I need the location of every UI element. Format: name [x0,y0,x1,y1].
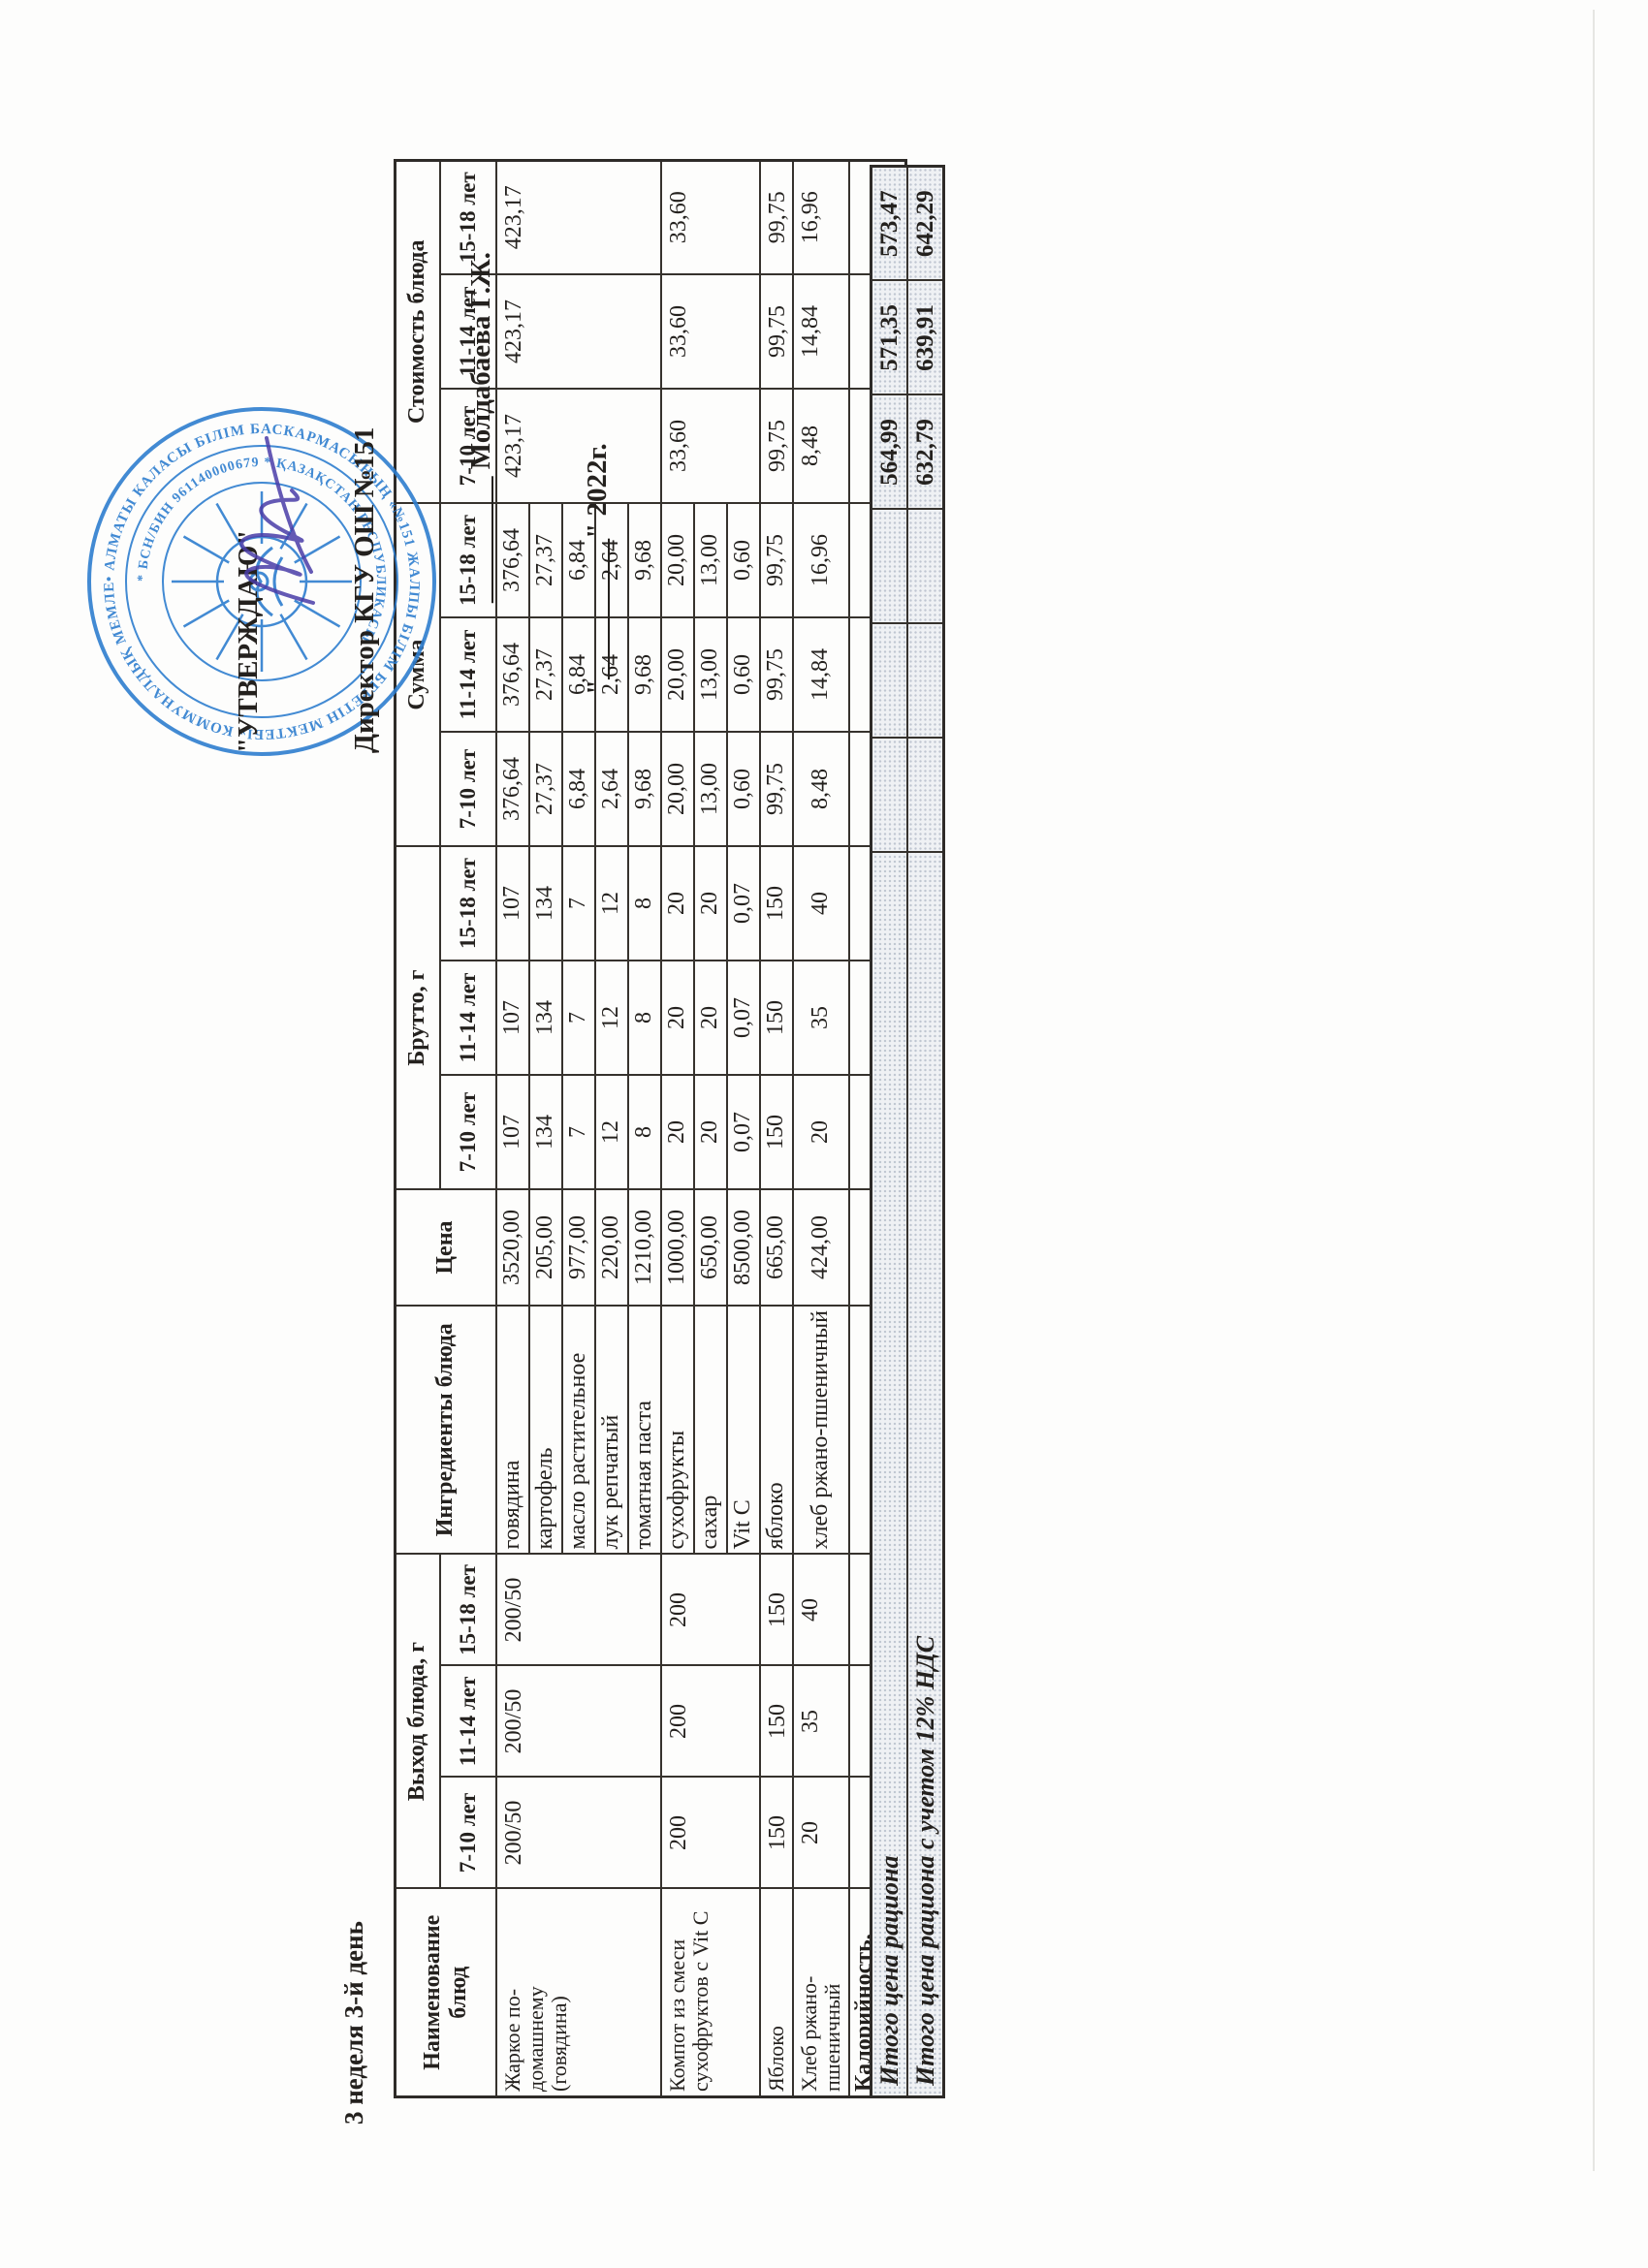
dish-cost-cell: 99,75 [760,274,793,389]
ingredient-cell: томатная паста [628,1306,661,1554]
yield-cell: 150 [760,1666,793,1778]
price-cell: 977,00 [562,1189,595,1306]
ingredient-cell: Vit C [727,1306,760,1554]
approval-line-director: Директор КГУ ОШ №151 [345,252,384,753]
yield-cell: 150 [760,1555,793,1666]
total-value-cell: 564,99 [872,395,908,510]
yield-cell: 35 [793,1666,849,1778]
dish-cost-cell: 16,96 [793,160,849,274]
yield-cell: 200/50 [496,1555,661,1666]
yield-cell: 200 [661,1666,760,1778]
yield-cell: 200 [661,1778,760,1889]
brutto-cell: 7 [562,1075,595,1189]
brutto-cell: 7 [562,961,595,1075]
column-header: 15-18 лет [440,846,496,961]
column-header: 11-14 лет [440,961,496,1075]
empty-cell [872,510,908,624]
brutto-cell: 150 [760,961,793,1075]
brutto-cell: 8 [628,1075,661,1189]
column-header: 15-18 лет [440,1555,496,1666]
yield-cell: 20 [793,1778,849,1889]
column-header: Цена [396,1189,496,1306]
brutto-cell: 150 [760,1075,793,1189]
brutto-cell: 134 [529,846,562,961]
sum-cell: 0,60 [727,503,760,617]
empty-cell [872,739,908,853]
sum-cell: 16,96 [793,503,849,617]
price-cell: 1000,00 [661,1189,694,1306]
dish-name-cell: Компот из смеси сухофруктов с Vit C [661,1889,760,2097]
price-cell: 665,00 [760,1189,793,1306]
column-header: Брутто, г [396,846,440,1189]
dish-cost-cell: 14,84 [793,274,849,389]
sum-cell: 13,00 [694,503,727,617]
approval-line-signatory: _________ Молдабаева Г.Ж. [461,252,500,753]
ingredient-cell: масло растительное [562,1306,595,1554]
empty-cell [907,510,944,624]
yield-cell: 200/50 [496,1778,661,1889]
empty-cell [907,624,944,739]
sum-cell: 99,75 [760,732,793,846]
yield-cell: 40 [793,1555,849,1666]
total-row-label: Итого цена рациона с учетом 12% НДС [907,853,944,2097]
yield-cell: 200 [661,1555,760,1666]
total-value-cell: 639,91 [907,281,944,395]
brutto-cell: 134 [529,961,562,1075]
total-value-cell: 571,35 [872,281,908,395]
price-cell: 220,00 [595,1189,628,1306]
signature-ink [199,397,344,630]
brutto-cell: 12 [595,1075,628,1189]
ingredient-cell: лук репчатый [595,1306,628,1554]
brutto-cell: 107 [496,1075,529,1189]
sum-cell: 8,48 [793,732,849,846]
sum-cell: 99,75 [760,617,793,732]
brutto-cell: 7 [562,846,595,961]
brutto-cell: 20 [694,846,727,961]
ingredient-cell: хлеб ржано-пшеничный [793,1306,849,1554]
total-value-cell: 642,29 [907,167,944,281]
brutto-cell: 40 [793,846,849,961]
dish-cost-cell: 99,75 [760,389,793,503]
dish-name-cell: Яблоко [760,1889,793,2097]
column-header: Наименование блюд [396,1889,496,2097]
ingredient-cell: картофель [529,1306,562,1554]
column-header: 7-10 лет [440,1778,496,1889]
empty-cell [872,624,908,739]
price-cell: 424,00 [793,1189,849,1306]
ingredient-cell: сахар [694,1306,727,1554]
sum-cell: 0,60 [727,732,760,846]
brutto-cell: 150 [760,846,793,961]
brutto-cell: 20 [661,961,694,1075]
dish-name-cell: Жаркое по-домашнему (говядина) [496,1889,661,2097]
brutto-cell: 0,07 [727,846,760,961]
page-title: 3 неделя 3-й день [339,1921,369,2125]
price-cell: 650,00 [694,1189,727,1306]
brutto-cell: 20 [793,1075,849,1189]
brutto-cell: 0,07 [727,961,760,1075]
brutto-cell: 0,07 [727,1075,760,1189]
total-row-label: Итого цена рациона [872,853,908,2097]
empty-cell [907,739,944,853]
total-value-cell: 573,47 [872,167,908,281]
brutto-cell: 12 [595,961,628,1075]
brutto-cell: 134 [529,1075,562,1189]
brutto-cell: 20 [661,1075,694,1189]
brutto-cell: 35 [793,961,849,1075]
sum-cell: 0,60 [727,617,760,732]
brutto-cell: 20 [694,961,727,1075]
column-header: Выход блюда, г [396,1555,440,1889]
brutto-cell: 12 [595,846,628,961]
sum-cell: 13,00 [694,732,727,846]
brutto-cell: 20 [694,1075,727,1189]
price-cell: 3520,00 [496,1189,529,1306]
brutto-cell: 107 [496,846,529,961]
brutto-cell: 8 [628,846,661,961]
brutto-cell: 8 [628,961,661,1075]
price-cell: 205,00 [529,1189,562,1306]
ingredient-cell: сухофрукты [661,1306,694,1554]
ingredient-cell: яблоко [760,1306,793,1554]
scan-artifact-line [1593,10,1595,2171]
totals-table: Итого цена рациона564,99571,35573,47Итог… [870,165,945,2098]
dish-cost-cell: 8,48 [793,389,849,503]
price-cell: 1210,00 [628,1189,661,1306]
yield-cell: 150 [760,1778,793,1889]
approval-line-date: "__________" 2022г. [578,252,617,753]
sum-cell: 13,00 [694,617,727,732]
column-header: 11-14 лет [440,1666,496,1778]
ingredient-cell: говядина [496,1306,529,1554]
scanned-document-page: { "page": { "title": "3 неделя 3-й день"… [0,0,1648,2268]
brutto-cell: 20 [661,846,694,961]
dish-cost-cell: 99,75 [760,160,793,274]
total-value-cell: 632,79 [907,395,944,510]
column-header: Ингредиенты блюда [396,1306,496,1554]
price-cell: 8500,00 [727,1189,760,1306]
column-header: 7-10 лет [440,1075,496,1189]
sum-cell: 99,75 [760,503,793,617]
rotated-scan-sheet: 3 неделя 3-й день Наименование блюдВыход… [0,0,1648,2268]
sum-cell: 14,84 [793,617,849,732]
dish-name-cell: Хлеб ржано-пшеничный [793,1889,849,2097]
yield-cell: 200/50 [496,1666,661,1778]
brutto-cell: 107 [496,961,529,1075]
